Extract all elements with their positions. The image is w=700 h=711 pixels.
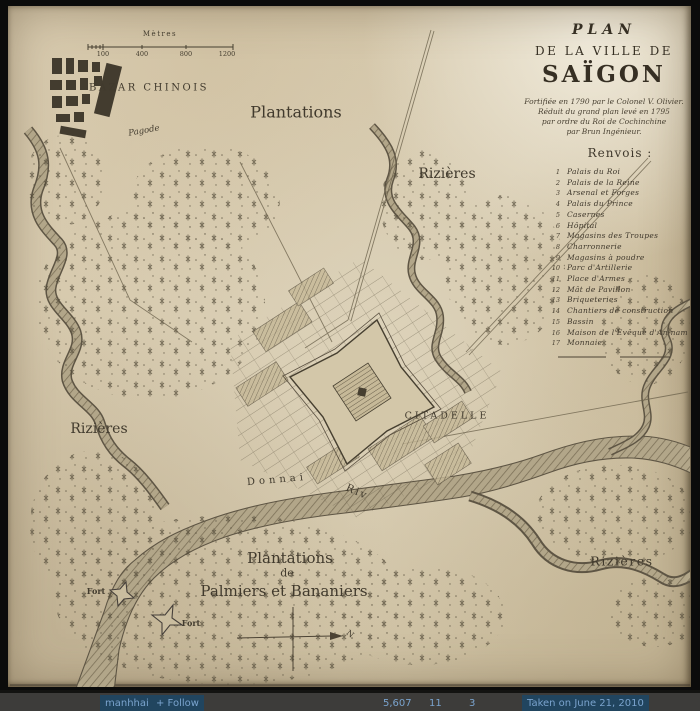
legend-item: 7Magasins des Troupes: [548, 231, 692, 242]
legend-item: 17Monnaie: [548, 338, 692, 349]
bazar-blocks: [50, 58, 122, 138]
scale-tick-label: 400: [136, 50, 148, 58]
citadel-keep: [357, 387, 366, 396]
scale-tick-label: 800: [180, 50, 192, 58]
scale-bar-art: [88, 44, 233, 50]
subtitle-line: par Brun Ingénieur.: [520, 127, 688, 137]
legend-item: 6Hôpital: [548, 221, 692, 232]
legend-item: 9Magasins à poudre: [548, 253, 692, 264]
legend-item: 3Arsenal et Forges: [548, 188, 692, 199]
scale-tick-label: 100: [97, 50, 109, 58]
fave-count: 11: [429, 695, 442, 711]
legend-item: 14Chantiers de construction: [548, 306, 692, 317]
title-block: PLAN DE LA VILLE DE SAÏGON Fortifiée en …: [520, 22, 688, 137]
legend-item: 5Casernes: [548, 210, 692, 221]
legend-item: 10Parc d'Artillerie: [548, 263, 692, 274]
subtitle-line: Réduit du grand plan levé en 1795: [520, 107, 688, 117]
scale-tick-label: 1200: [219, 50, 236, 58]
legend-item: 11Place d'Armes: [548, 274, 692, 285]
comment-count: 3: [469, 695, 475, 711]
legend-item: 12Mât de Pavillon: [548, 285, 692, 296]
photo-info-bar: manhhai + Follow 5,607 11 3 Taken on Jun…: [0, 690, 700, 711]
screenshot-frame: BAZAR CHINOISPagodePlantationsRizièresRi…: [0, 0, 700, 711]
legend-item: 2Palais de la Reine: [548, 178, 692, 189]
legend-item: 15Bassin: [548, 317, 692, 328]
subtitle-line: par ordre du Roi de Cochinchine: [520, 117, 688, 127]
username-link[interactable]: manhhai: [100, 695, 154, 711]
legend-item: 4Palais du Prince: [548, 199, 692, 210]
legend-list: 1Palais du Roi2Palais de la Reine3Arsena…: [548, 167, 692, 349]
scale-title: Mètres: [143, 30, 177, 38]
map-title-saigon: SAÏGON: [520, 61, 688, 88]
map-title-line1: PLAN: [520, 22, 688, 38]
taken-date: Taken on June 21, 2010: [522, 695, 649, 711]
legend-item: 13Briqueteries: [548, 295, 692, 306]
subtitle-line: Fortifiée en 1790 par le Colonel V. Oliv…: [520, 97, 688, 107]
legend-item: 16Maison de l'Evêque d'An-nam: [548, 328, 692, 339]
legend-title: Renvois :: [548, 146, 692, 160]
view-count: 5,607: [383, 695, 412, 711]
map-subtitle: Fortifiée en 1790 par le Colonel V. Oliv…: [520, 97, 688, 137]
follow-button[interactable]: + Follow: [151, 695, 204, 711]
legend-item: 8Charronnerie: [548, 242, 692, 253]
legend: Renvois : 1Palais du Roi2Palais de la Re…: [548, 146, 692, 349]
legend-item: 1Palais du Roi: [548, 167, 692, 178]
map-title-line2: DE LA VILLE DE: [520, 44, 688, 58]
